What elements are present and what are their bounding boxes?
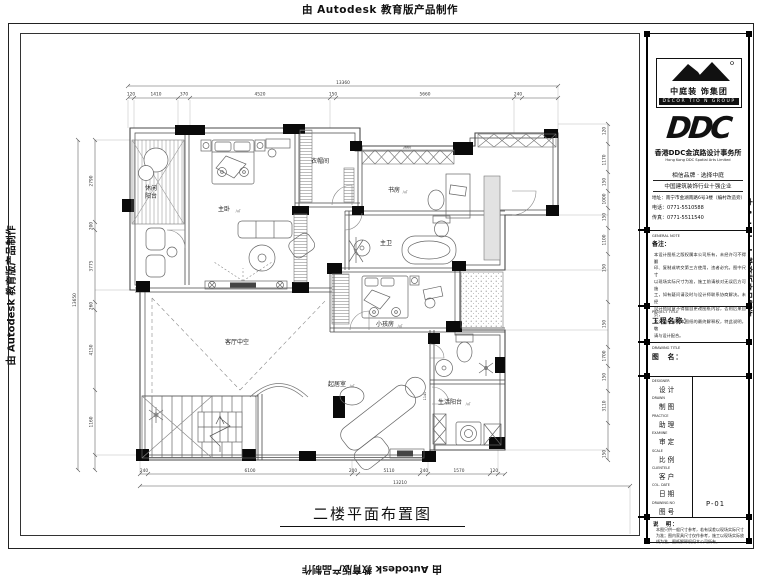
- general-note-text: 本设计图纸之版权属本公司所有，未经许可不得翻 印、复制或转交第三方使用，违者必究…: [654, 252, 746, 339]
- svg-text:200: 200: [349, 468, 357, 474]
- field-drawing-no: 图号: [659, 506, 676, 516]
- interior-walls: [135, 128, 505, 460]
- svg-text:13650: 13650: [72, 293, 78, 307]
- field-divider: [692, 376, 693, 517]
- company-name-cn: 中庭装 饰集团: [657, 86, 741, 97]
- company-honor: 中国建筑装饰行业十强企业: [648, 182, 748, 190]
- svg-text:1160: 1160: [89, 416, 95, 427]
- svg-text:5660: 5660: [420, 92, 431, 98]
- svg-text:4520: 4520: [255, 92, 266, 98]
- company-address: 地址：南宁市金湖南路6号3楼（编村改造旁）: [652, 195, 745, 201]
- title-block: 中庭装 饰集团 DECOR TIO N GROUP DDC 香港DDC金滨路设计…: [646, 33, 750, 543]
- ddc-name-en: Hong Kong DDC Spatial Arts Limited: [648, 158, 748, 162]
- company-phone: 电话：0771-5510588: [652, 204, 704, 211]
- plan-title: 二楼平面布置图: [280, 503, 465, 527]
- svg-text:260: 260: [89, 302, 95, 310]
- svg-text:阳台: 阳台: [145, 192, 157, 200]
- company-fax: 传真：0771-5511540: [652, 214, 704, 221]
- svg-text:13210: 13210: [393, 480, 407, 486]
- hatch-areas: [132, 130, 556, 328]
- svg-text:3110: 3110: [602, 400, 608, 411]
- separator: [648, 376, 748, 377]
- svg-text:1570: 1570: [454, 468, 465, 474]
- svg-text:/㎡: /㎡: [403, 189, 408, 194]
- svg-text:1100: 1100: [602, 234, 608, 245]
- field-designer-en: DESIGNER: [652, 379, 670, 383]
- company-name-en: DECOR TIO N GROUP: [659, 98, 739, 105]
- svg-text:150: 150: [602, 213, 608, 221]
- svg-text:200: 200: [89, 222, 95, 230]
- room-label-void: 客厅中空: [225, 338, 249, 346]
- drawing-title-label-en: DRAWING TITLE: [652, 346, 680, 350]
- svg-text:5110: 5110: [384, 468, 395, 474]
- separator: [648, 517, 748, 518]
- note-text: 本图只供一般尺寸参考，若有误差以现场实际尺寸 为准；图内家具尺寸仅作参考，施工以…: [656, 527, 746, 544]
- svg-text:120: 120: [490, 468, 498, 474]
- drawing-title-label-cn: 图 名：: [652, 351, 683, 361]
- separator: [648, 230, 748, 231]
- svg-text:120: 120: [127, 92, 135, 98]
- drawing-sheet: 由 Autodesk 教育版产品制作 由 Autodesk 教育版产品制作 由 …: [0, 0, 760, 570]
- svg-text:1000: 1000: [602, 193, 608, 204]
- field-drawing-no-en: DRAWING NO: [652, 501, 675, 505]
- svg-text:240: 240: [140, 468, 148, 474]
- company-logo: 中庭装 饰集团 DECOR TIO N GROUP: [656, 58, 742, 108]
- field-designer: 设计: [659, 384, 676, 394]
- svg-text:150: 150: [602, 178, 608, 186]
- field-scale-en: SCALE: [652, 449, 663, 453]
- field-drawn-en: DRAWN: [652, 396, 665, 400]
- field-client-en: CLIENTELE: [652, 466, 670, 470]
- ddc-name-cn: 香港DDC金滨路设计事务所: [648, 148, 748, 158]
- project-title-label-en: PROJECT TITLE: [652, 310, 678, 314]
- room-label-kids: 小孩房: [376, 320, 394, 328]
- room-label-service-balcony: 生活阳台: [438, 398, 462, 406]
- svg-text:240: 240: [514, 92, 522, 98]
- room-label-cloakroom: 衣帽间: [311, 157, 329, 165]
- field-examine: 审定: [659, 436, 676, 446]
- svg-text:150: 150: [602, 373, 608, 381]
- svg-text:150: 150: [602, 450, 608, 458]
- svg-text:150: 150: [602, 320, 608, 328]
- general-note-label-en: GENERAL NOTE: [652, 234, 680, 238]
- drawing-number-value: P-01: [706, 500, 725, 508]
- room-label-leisure-balcony: 休闲: [145, 184, 157, 192]
- svg-text:/㎡: /㎡: [466, 401, 471, 406]
- general-note-label-cn: 备注：: [652, 239, 670, 248]
- field-practice-en: PRACTICE: [652, 414, 668, 418]
- svg-text:150: 150: [602, 264, 608, 272]
- furniture: [139, 139, 502, 472]
- company-slogan: 相信品牌 · 选择中庭: [648, 170, 748, 179]
- svg-text:/㎡: /㎡: [398, 323, 403, 328]
- svg-text:3775: 3775: [89, 260, 95, 271]
- field-scale: 比例: [659, 454, 676, 464]
- field-drawn: 制图: [659, 401, 676, 411]
- svg-text:2790: 2790: [89, 175, 95, 186]
- svg-text:1170: 1170: [602, 154, 608, 165]
- ddc-logo: DDC: [646, 114, 749, 144]
- svg-text:150: 150: [329, 92, 337, 98]
- field-client: 客户: [659, 471, 676, 481]
- svg-text:6100: 6100: [245, 468, 256, 474]
- room-label-master: 主卧: [218, 205, 230, 213]
- room-label-study: 书房: [388, 186, 400, 194]
- svg-text:4150: 4150: [89, 344, 95, 355]
- svg-text:13360: 13360: [336, 80, 350, 86]
- svg-text:/㎡: /㎡: [236, 208, 241, 213]
- room-label-family: 起居室: [328, 380, 346, 388]
- room-label-master-bath: 主卫: [380, 239, 392, 247]
- svg-text:240: 240: [420, 468, 428, 474]
- svg-text:1700: 1700: [602, 350, 608, 361]
- project-title-label-cn: 工程名称：: [652, 315, 691, 325]
- field-practice: 助理: [659, 419, 676, 429]
- svg-text:370: 370: [180, 92, 188, 98]
- field-date-en: COL. DATE: [652, 483, 670, 487]
- svg-text:1410: 1410: [151, 92, 162, 98]
- svg-text:120: 120: [602, 127, 608, 135]
- field-date: 日期: [659, 488, 676, 498]
- field-examine-en: EXAMINE: [652, 431, 667, 435]
- mountain-logo-icon: [658, 59, 740, 83]
- separator: [648, 342, 748, 343]
- svg-text:/㎡: /㎡: [350, 383, 355, 388]
